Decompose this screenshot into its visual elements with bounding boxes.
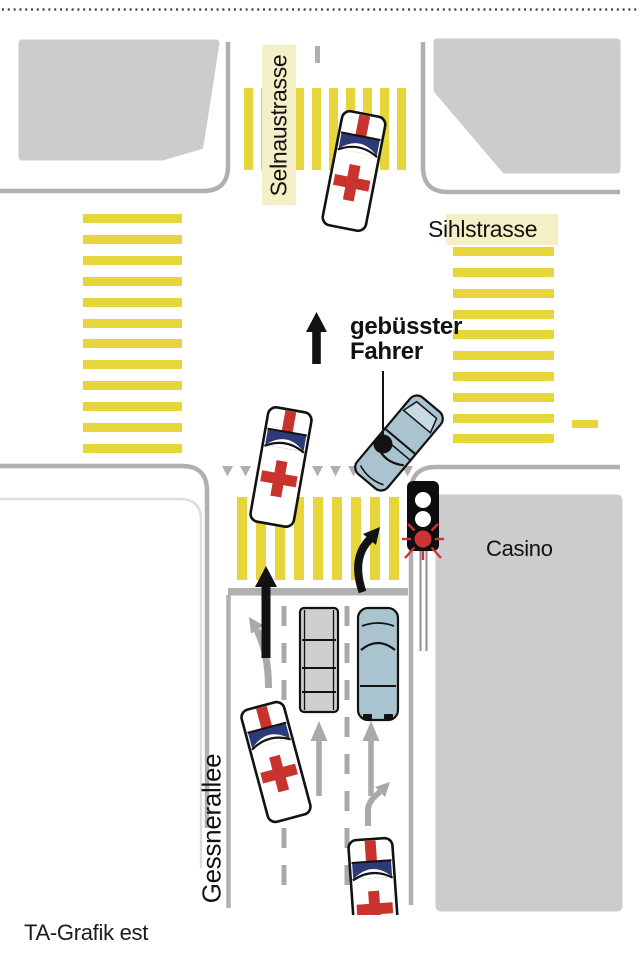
lane-marking-stub [315, 46, 320, 63]
diagram-canvas [0, 0, 640, 973]
signal-lamp-red [415, 531, 432, 548]
yellow-marking-dash [572, 420, 598, 428]
driver-dot [374, 435, 393, 454]
building-top-right [437, 42, 617, 170]
direction-arrow-center [306, 312, 327, 364]
gray-van [300, 608, 338, 712]
street-label-band-selnaustrasse: Selnaustrasse [262, 45, 296, 205]
blue-car-right-lane [358, 608, 398, 720]
ambulance-bottom-right [348, 838, 400, 957]
street-label-selnaustrasse: Selnaustrasse [266, 54, 293, 196]
crosswalk-right [453, 247, 598, 443]
annotation-fined-driver: gebüsster Fahrer [350, 315, 462, 364]
ambulance-bottom-left [240, 700, 313, 823]
building-label-casino: Casino [486, 536, 553, 562]
signal-lamp-top [415, 492, 431, 508]
annotation-line1: gebüsster [350, 315, 462, 340]
car-fined-driver [352, 392, 447, 494]
signal-lamp-middle [415, 511, 431, 527]
street-label-gessnerallee: Gessnerallee [197, 753, 228, 903]
curb-bottom-left [0, 466, 207, 828]
lane-arrow-straight-middle [311, 721, 328, 796]
block-outline-bottom-left [0, 499, 201, 868]
lane-arrow-straight-right [363, 721, 380, 796]
building-top-left [22, 43, 216, 157]
traffic-intersection-diagram: Selnaustrasse Sihlstrasse Gessnerallee C… [0, 0, 640, 973]
street-label-sihlstrasse: Sihlstrasse [428, 216, 537, 243]
stop-line [228, 588, 408, 596]
crosswalk-left [83, 214, 182, 453]
street-label-wrap-gessnerallee: Gessnerallee [194, 737, 230, 919]
credit-line: TA-Grafik est [24, 920, 148, 946]
annotation-line2: Fahrer [350, 340, 462, 365]
